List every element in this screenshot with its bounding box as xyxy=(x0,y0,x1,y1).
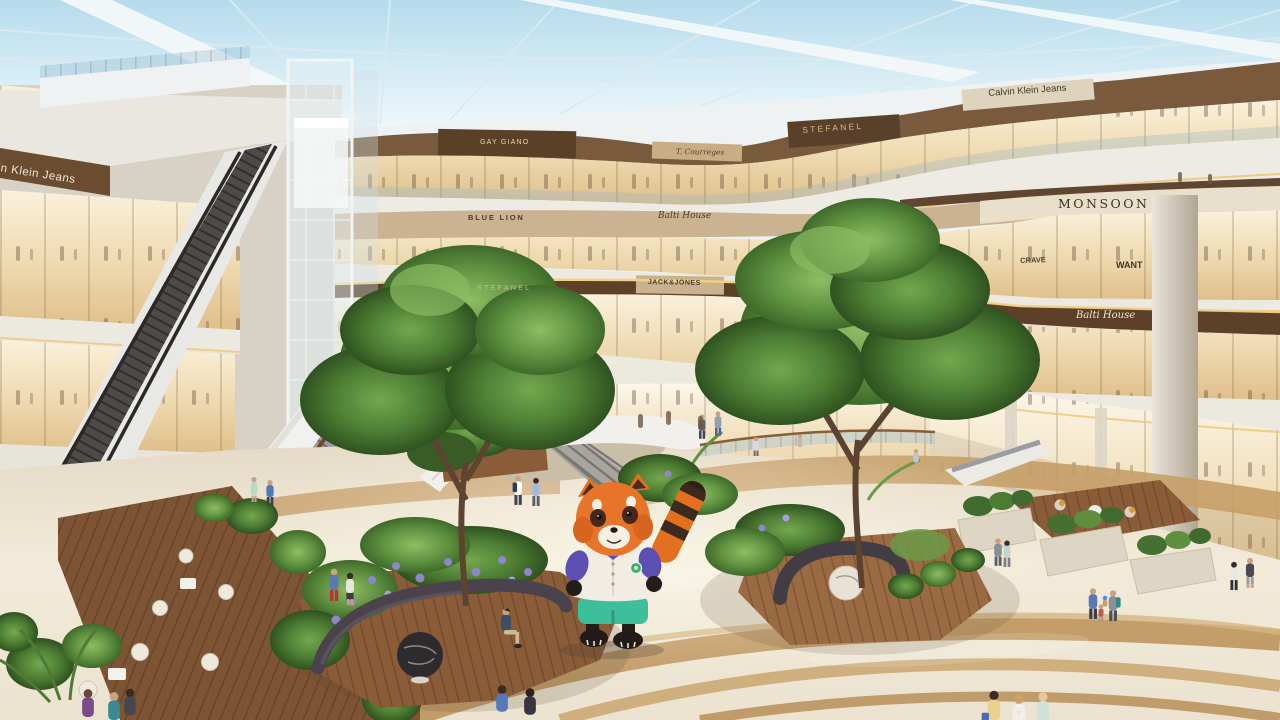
jack-jones-fascia xyxy=(636,275,724,295)
mall-atrium-scene: Calvin Klein Jeans Calvin Klein Jeans GA… xyxy=(0,0,1280,720)
elevator-cab xyxy=(294,118,348,208)
person xyxy=(496,685,508,712)
person xyxy=(124,689,135,716)
courreges-fascia xyxy=(652,142,743,162)
person xyxy=(1013,695,1025,720)
round-table xyxy=(397,632,443,678)
person xyxy=(524,688,536,715)
person xyxy=(798,435,803,447)
person-child xyxy=(1103,596,1108,607)
person xyxy=(1037,692,1049,720)
scene-illustration xyxy=(0,0,1280,720)
person xyxy=(108,692,120,720)
person xyxy=(913,449,918,462)
person xyxy=(82,689,94,717)
gay-giano-fascia xyxy=(438,129,576,158)
